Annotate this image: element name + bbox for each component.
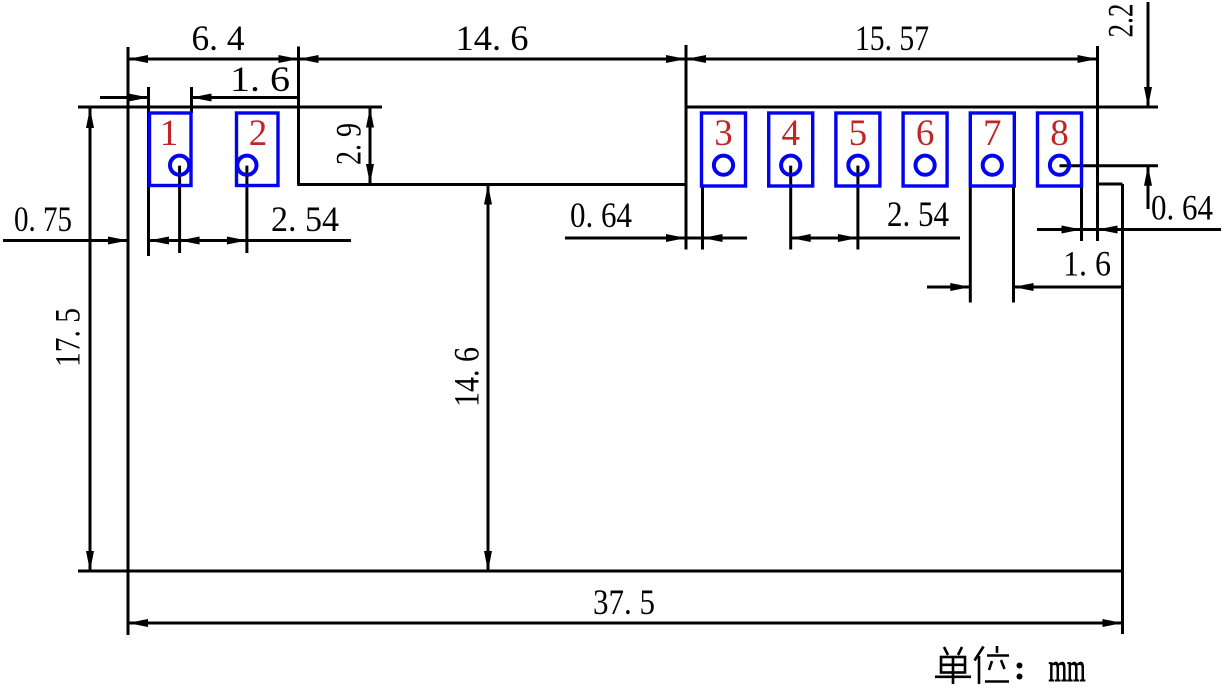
svg-text:6: 6 [916, 113, 935, 154]
svg-text:0. 75: 0. 75 [14, 199, 72, 239]
svg-text:1. 6: 1. 6 [230, 59, 290, 99]
svg-text:1: 1 [160, 113, 179, 154]
svg-text:8: 8 [1050, 113, 1069, 154]
svg-text:1. 6: 1. 6 [1063, 244, 1111, 284]
svg-text:2. 54: 2. 54 [887, 194, 949, 234]
svg-text:7: 7 [983, 113, 1002, 154]
svg-text:4: 4 [781, 113, 800, 154]
svg-text:0. 64: 0. 64 [1151, 188, 1213, 228]
svg-text:2. 54: 2. 54 [271, 199, 339, 239]
svg-text:14. 6: 14. 6 [447, 347, 487, 407]
svg-text:14. 6: 14. 6 [456, 18, 529, 58]
svg-text:mm: mm [1049, 645, 1086, 690]
svg-text:0. 64: 0. 64 [570, 195, 632, 235]
svg-text:3: 3 [714, 113, 733, 154]
svg-text:2. 9: 2. 9 [329, 123, 369, 165]
svg-text:37. 5: 37. 5 [593, 582, 655, 622]
svg-text:6. 4: 6. 4 [192, 18, 245, 58]
svg-text:2: 2 [249, 113, 268, 154]
svg-text:15. 57: 15. 57 [855, 18, 929, 58]
svg-text:17. 5: 17. 5 [48, 308, 88, 367]
svg-text:2.2: 2.2 [1101, 4, 1141, 38]
svg-text:5: 5 [849, 113, 868, 154]
